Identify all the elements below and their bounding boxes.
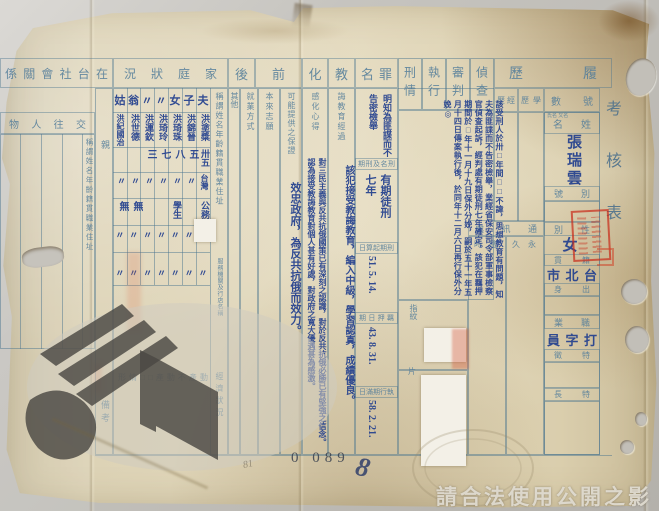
top-right-stain xyxy=(598,0,659,42)
family-economic-note: 動產不動產□□情形 xyxy=(118,372,208,383)
band-resume: 履歷 xyxy=(494,58,612,88)
name-sub-label: 氏名 又名 xyxy=(547,114,573,120)
name-value: 張瑞雲 xyxy=(563,134,584,188)
contact-permanent-cell xyxy=(506,236,544,455)
occupation-value: 打字員 xyxy=(547,330,597,348)
red-seal-fragment xyxy=(597,248,614,266)
member-native: 〃 xyxy=(171,176,184,196)
band-after: 後 xyxy=(228,58,255,88)
member-name: 洪塗槳 xyxy=(199,114,212,146)
fingerprint-label: 指紋 xyxy=(408,304,419,320)
member-native: 〃 xyxy=(143,176,156,196)
complete-date-value: 58. 2. 21. xyxy=(366,400,377,458)
member-rel: 女 xyxy=(168,90,182,110)
usage-watermark-text: 請合法使用公開之影像 xyxy=(436,481,659,511)
member-name: 洪紀國治 xyxy=(115,114,126,146)
employment-label: 就業方式 xyxy=(245,92,256,152)
pencil-note: 81 xyxy=(242,458,254,471)
guarantee-text: 效忠政府，為反共抗俄而效力。 xyxy=(284,182,302,452)
member-rel: 〃 xyxy=(154,90,168,110)
contacts-header: 交往人物 xyxy=(0,112,95,134)
crime-value: 明知為匪諜而不告密檢舉 xyxy=(360,94,394,160)
member-native: 〃 xyxy=(129,176,142,196)
band-crime: 罪名 xyxy=(355,58,398,88)
censor-box-address xyxy=(194,219,216,242)
member-native: 〃 xyxy=(157,176,170,196)
member-name: 洪運欽 xyxy=(143,114,156,146)
col-execution: 執行 xyxy=(426,66,443,102)
mid-stain xyxy=(200,18,350,44)
worm-hole xyxy=(620,440,634,454)
band-family-status: 家庭狀況 xyxy=(113,58,228,88)
member-native: 〃 xyxy=(115,176,128,196)
resume-education-label: 學歷 xyxy=(518,88,544,112)
contacts-row-labels: 稱謂姓名年齡籍貫職業住址 xyxy=(84,138,95,343)
reflection-text: 對三民主義與反共抗俄國策已有深刻之認識，對於反共抗俄必勝已有堅強之信念。認為接受… xyxy=(303,158,328,453)
specialty-value-empty xyxy=(544,401,600,455)
family-service-label: 服務機關及行店名稱 xyxy=(215,258,224,366)
band-before: 前 xyxy=(255,58,302,88)
member-rel: 〃 xyxy=(140,90,154,110)
red-stamp-trace-photo xyxy=(452,329,469,369)
reflection-label: 感化心得 xyxy=(310,92,321,156)
member-rel: 子 xyxy=(182,90,196,110)
contact-permanent-label: 永久 xyxy=(512,239,536,250)
band-social-relations: 在台社會關係 xyxy=(0,58,113,88)
remarks-label: 備考 xyxy=(99,400,112,442)
sentence-start-label: 刑期起算日 xyxy=(355,242,398,254)
complete-date-label: 執行期滿日 xyxy=(355,386,398,398)
band-teach: 教 xyxy=(328,58,355,88)
member-age: 八 xyxy=(171,149,186,171)
detention-date-value: 43. 8. 31. xyxy=(366,327,377,385)
detention-date-label: 羈押日期 xyxy=(355,312,398,324)
sentence-start-value: 51. 5. 14. xyxy=(366,256,377,304)
band-reform: 化 xyxy=(302,58,328,88)
features-label: 特徵 xyxy=(544,349,600,362)
member-native: 台灣 xyxy=(199,174,210,198)
member-name: 洪琦珠 xyxy=(171,114,184,146)
guarantee-label: 可能提供之保證 xyxy=(286,92,297,178)
features-value-empty xyxy=(544,362,600,388)
col-trial: 審判 xyxy=(450,66,467,102)
case-narrative: 該受刑人於卅□年間□□不諱，思想教育有問題，知夫為匪諜而不告密檢舉，業經省保安司… xyxy=(442,100,504,300)
member-job: 無 xyxy=(115,201,130,224)
member-job: 無 xyxy=(129,201,144,224)
photo-label: 片 xyxy=(408,366,416,377)
origin-label: 出身 xyxy=(544,283,600,296)
teaching-label: 誨教育經過 xyxy=(336,92,347,172)
page-number-stamp: 0 089 xyxy=(291,450,350,467)
serial-number-label: 號數 xyxy=(544,88,600,112)
scanned-document-photo: 考核表 在台社會關係 家庭狀況 後 前 化 教 罪名 刑情 執行 審判 偵查 履… xyxy=(0,0,659,511)
member-rel: 夫 xyxy=(196,90,210,110)
member-name: 洪世德 xyxy=(129,114,142,146)
worm-hole xyxy=(625,326,649,353)
occupation-label: 職業 xyxy=(544,315,600,329)
aspiration-label: 本來志願 xyxy=(264,92,275,152)
member-age: 三 xyxy=(143,149,158,171)
relatives-column-label: 親 xyxy=(99,140,112,149)
col-sentence-details: 刑情 xyxy=(402,66,419,102)
member-rel: 翁 xyxy=(127,90,140,110)
red-stamp-trace-family xyxy=(127,252,141,332)
worm-hole xyxy=(635,412,647,426)
education-column xyxy=(518,112,544,222)
contacts-table xyxy=(0,134,95,349)
teaching-text: 該犯接受教誨教育，編入中級，學習認真，成績優良。 xyxy=(329,165,355,455)
red-dot-trace xyxy=(93,363,102,393)
sentence-label: 刑名及刑期 xyxy=(355,158,398,170)
worm-hole xyxy=(621,279,647,304)
other-column xyxy=(228,88,240,455)
sentence-value: 有期徒刑 七年 xyxy=(362,174,392,240)
member-name: 洪錦晉 xyxy=(185,114,198,146)
member-rel: 姑 xyxy=(113,90,127,110)
family-economic-label: 經濟狀況 xyxy=(214,372,225,450)
alias-label: 別號 xyxy=(544,186,600,201)
col-investigation: 偵查 xyxy=(474,66,491,102)
member-age: 卅五 xyxy=(199,149,212,171)
member-age: 五 xyxy=(185,149,200,171)
origin-value-empty xyxy=(544,296,600,315)
specialty-label: 特長 xyxy=(544,388,600,401)
member-job: 學生 xyxy=(171,201,184,224)
member-native: 〃 xyxy=(185,176,198,196)
member-name: 洪琦玲 xyxy=(157,114,170,146)
other-label: 其他 xyxy=(229,92,240,132)
native-value: 台北市 xyxy=(547,265,597,283)
member-age: 七 xyxy=(157,149,172,171)
